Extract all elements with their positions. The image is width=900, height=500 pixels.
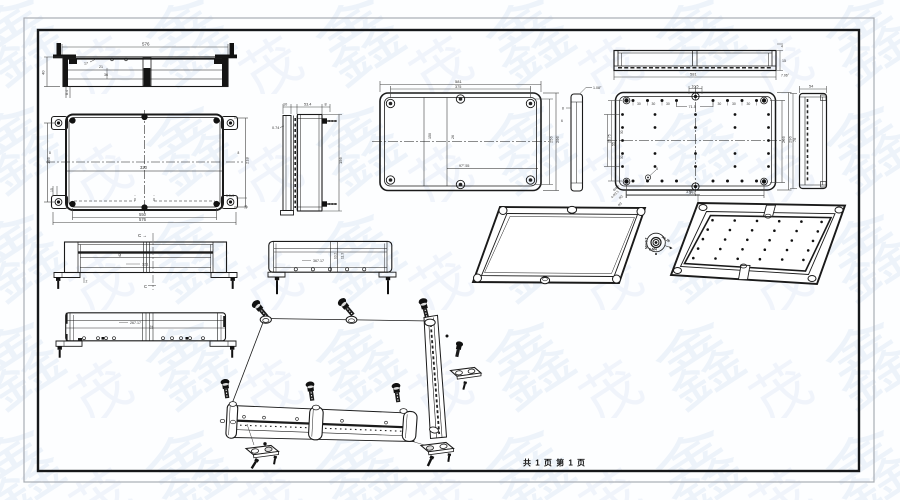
svg-text:256: 256 [781,136,786,143]
svg-text:218: 218 [245,157,250,164]
svg-text:30: 30 [732,102,736,106]
svg-text:15: 15 [782,59,786,63]
svg-text:376: 376 [686,190,692,194]
svg-text:8: 8 [325,103,327,107]
svg-text:11.3: 11.3 [341,253,345,259]
svg-text:581: 581 [690,72,697,77]
svg-text:54: 54 [809,85,813,89]
svg-text:8-M4: 8-M4 [649,248,657,252]
svg-text:8: 8 [656,167,658,171]
svg-text:4: 4 [781,45,783,49]
svg-text:30: 30 [718,102,722,106]
svg-text:0.74: 0.74 [272,126,279,130]
svg-text:320: 320 [140,165,148,170]
svg-text:7.06°: 7.06° [781,74,790,78]
svg-text:581: 581 [455,79,462,84]
svg-text:15: 15 [50,188,54,192]
svg-text:576: 576 [139,217,147,222]
svg-text:296: 296 [555,136,560,143]
svg-text:10: 10 [283,103,287,107]
svg-text:M4×0.7: M4×0.7 [645,237,649,249]
svg-text:C →: C → [138,233,147,238]
svg-text:576: 576 [142,42,150,47]
svg-text:10.2: 10.2 [334,253,338,259]
svg-text:30: 30 [620,155,624,159]
svg-text:8.4: 8.4 [65,90,69,95]
svg-text:12: 12 [150,325,154,329]
svg-text:375: 375 [455,85,461,89]
svg-text:267.17: 267.17 [130,321,141,325]
svg-text:8: 8 [562,107,564,111]
svg-text:C: C [144,284,147,289]
svg-text:321: 321 [142,263,148,267]
svg-text:76: 76 [793,138,797,142]
svg-text:6: 6 [561,119,563,123]
svg-text:1.08°: 1.08° [593,86,602,90]
svg-text:55: 55 [612,142,616,146]
svg-text:42: 42 [118,253,122,257]
svg-text:97°.55: 97°.55 [459,164,469,168]
svg-text:53.4: 53.4 [304,103,311,107]
svg-text:367.17: 367.17 [313,259,324,263]
svg-text:8: 8 [49,151,51,155]
svg-text:2: 2 [86,280,88,284]
svg-text:17: 17 [84,62,88,66]
svg-text:共 1 页 第 1 页: 共 1 页 第 1 页 [523,458,586,468]
svg-text:21: 21 [99,65,103,69]
svg-text:71.5: 71.5 [689,105,696,109]
svg-text:13: 13 [244,205,248,209]
svg-text:30: 30 [666,102,670,106]
svg-text:36: 36 [104,73,108,77]
svg-text:30: 30 [747,102,751,106]
svg-text:156: 156 [338,157,343,164]
svg-text:30: 30 [620,130,624,134]
svg-text:10.5: 10.5 [692,85,699,89]
svg-text:26: 26 [451,135,455,139]
svg-text:8: 8 [238,151,240,155]
svg-text:30: 30 [637,102,641,106]
svg-text:40: 40 [41,70,46,75]
svg-text:30: 30 [652,102,656,106]
svg-text:25.75: 25.75 [608,134,612,143]
svg-text:156: 156 [46,157,51,164]
svg-text:3.5x9: 3.5x9 [226,194,234,198]
svg-text:256: 256 [549,136,554,143]
svg-text:150: 150 [428,133,432,139]
svg-text:296: 296 [788,136,793,143]
